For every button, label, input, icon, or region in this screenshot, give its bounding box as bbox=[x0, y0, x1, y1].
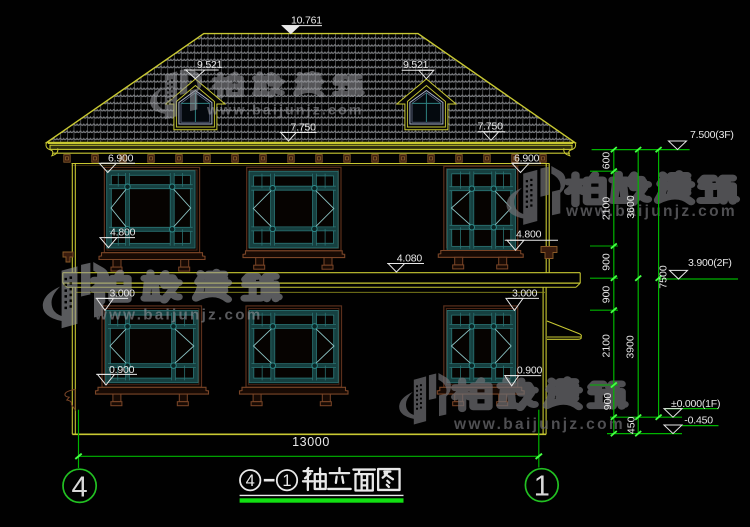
svg-text:2100: 2100 bbox=[601, 197, 613, 221]
svg-text:1: 1 bbox=[534, 471, 550, 503]
svg-text:10.761: 10.761 bbox=[291, 15, 322, 27]
svg-text:900: 900 bbox=[602, 393, 614, 411]
svg-text:13000: 13000 bbox=[292, 435, 330, 449]
svg-text:450: 450 bbox=[626, 416, 638, 434]
svg-text:4.080: 4.080 bbox=[397, 252, 423, 264]
svg-text:1: 1 bbox=[282, 472, 291, 490]
svg-text:900: 900 bbox=[601, 253, 613, 271]
svg-text:3600: 3600 bbox=[625, 195, 637, 219]
svg-text:3.900(2F): 3.900(2F) bbox=[688, 257, 732, 269]
svg-text:-0.450: -0.450 bbox=[684, 415, 713, 427]
svg-text:4.800: 4.800 bbox=[516, 229, 542, 241]
svg-text:3.000: 3.000 bbox=[512, 287, 538, 299]
svg-text:4.800: 4.800 bbox=[110, 226, 136, 238]
svg-text:7.500(3F): 7.500(3F) bbox=[690, 129, 734, 141]
svg-text:0.900: 0.900 bbox=[517, 365, 543, 377]
svg-text:7.750: 7.750 bbox=[478, 121, 504, 133]
svg-text:9.521: 9.521 bbox=[197, 59, 223, 71]
svg-text:www.baijunjz.com: www.baijunjz.com bbox=[206, 103, 364, 119]
svg-text:900: 900 bbox=[601, 286, 613, 304]
svg-text:4: 4 bbox=[72, 471, 88, 503]
svg-text:9.521: 9.521 bbox=[403, 59, 429, 71]
svg-text:www.baijunjz.com: www.baijunjz.com bbox=[94, 307, 263, 324]
svg-text:www.baijunjz.com: www.baijunjz.com bbox=[565, 203, 737, 220]
svg-text:600: 600 bbox=[601, 152, 613, 170]
svg-text:3900: 3900 bbox=[625, 335, 637, 359]
svg-text:4: 4 bbox=[246, 472, 255, 490]
svg-text:7500: 7500 bbox=[658, 265, 670, 289]
svg-text:2100: 2100 bbox=[601, 334, 613, 358]
svg-text:7.750: 7.750 bbox=[291, 122, 317, 134]
svg-text:3.000: 3.000 bbox=[110, 287, 136, 299]
